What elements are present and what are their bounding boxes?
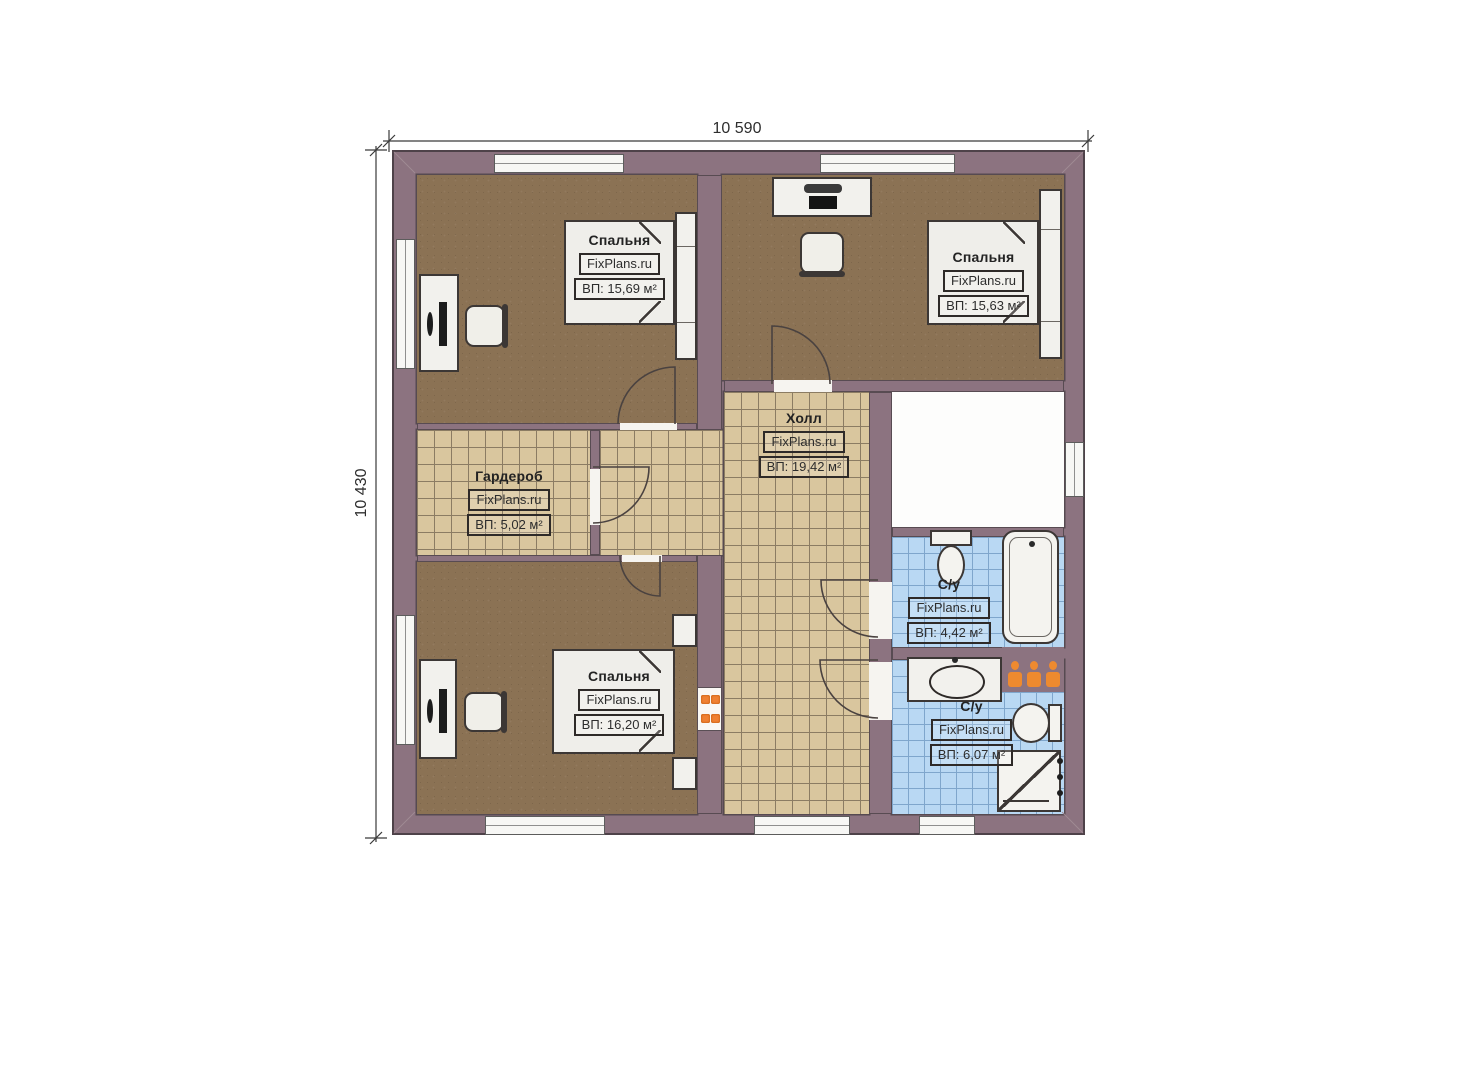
- window: [754, 816, 850, 835]
- room-label-wardrobe: Гардероб FixPlans.ru ВП: 5,02 м²: [444, 468, 574, 536]
- toilet-tank: [930, 530, 972, 546]
- dimension-width-label: 10 590: [637, 120, 837, 138]
- room-name: С/у: [938, 576, 960, 592]
- toilet-tank: [1048, 704, 1062, 742]
- door-opening: [590, 469, 600, 525]
- computer-icon: [439, 689, 447, 733]
- room-name: Спальня: [589, 232, 651, 248]
- printer-icon: [809, 196, 837, 209]
- room-label-bathroom-bottom: С/у FixPlans.ru ВП: 6,07 м²: [919, 698, 1024, 766]
- room-label-bedroom-bottom-left: Спальня FixPlans.ru ВП: 16,20 м²: [554, 668, 684, 736]
- printer-icon: [804, 184, 842, 193]
- radiator-knob: [1027, 672, 1041, 687]
- room-area: ВП: 15,69 м²: [574, 278, 665, 300]
- faucet: [1029, 541, 1035, 547]
- window: [919, 816, 975, 835]
- room-area: ВП: 4,42 м²: [907, 622, 990, 644]
- office-chair: [465, 305, 505, 347]
- office-desk: [419, 659, 457, 759]
- heater: [697, 687, 722, 731]
- chair-back: [501, 691, 507, 733]
- washbasin: [929, 665, 985, 699]
- faucet: [952, 657, 958, 663]
- room-area: ВП: 16,20 м²: [574, 714, 665, 736]
- corridor: [600, 430, 724, 555]
- window: [396, 239, 415, 369]
- shower-knob: [1057, 790, 1063, 796]
- watermark: FixPlans.ru: [763, 431, 844, 453]
- heater-dot: [701, 714, 710, 723]
- washbasin-counter: [907, 657, 1002, 702]
- window: [494, 154, 624, 173]
- divider: [1041, 229, 1060, 230]
- chair-back: [799, 271, 845, 277]
- window: [396, 615, 415, 745]
- door-opening: [869, 582, 892, 639]
- computer-icon: [439, 302, 447, 346]
- shower-base: [1003, 800, 1049, 802]
- door-opening: [774, 380, 832, 392]
- dimension-height-label: 10 430: [353, 443, 371, 543]
- office-chair: [464, 692, 504, 732]
- room-area: ВП: 5,02 м²: [467, 514, 550, 536]
- room-unlabeled: [892, 392, 1064, 527]
- shower-knob: [1057, 758, 1063, 764]
- divider: [677, 322, 695, 323]
- shower-knob: [1057, 774, 1063, 780]
- window: [820, 154, 955, 173]
- room-label-bedroom-top-left: Спальня FixPlans.ru ВП: 15,69 м²: [552, 232, 687, 300]
- office-desk: [419, 274, 459, 372]
- blanket-fold: [639, 301, 661, 323]
- room-name: Холл: [786, 410, 822, 426]
- room-area: ВП: 19,42 м²: [759, 456, 850, 478]
- watermark: FixPlans.ru: [931, 719, 1012, 741]
- window: [485, 816, 605, 835]
- heater-dot: [711, 714, 720, 723]
- watermark: FixPlans.ru: [943, 270, 1024, 292]
- interior-wall: [697, 555, 722, 814]
- chair-back: [502, 304, 508, 348]
- bathtub: [1002, 530, 1059, 644]
- window: [1065, 442, 1084, 497]
- radiator-knob: [1046, 672, 1060, 687]
- building-outline: Спальня FixPlans.ru ВП: 15,69 м² Спальня…: [392, 150, 1085, 835]
- room-label-bathroom-top: С/у FixPlans.ru ВП: 4,42 м²: [899, 576, 999, 644]
- interior-wall: [697, 175, 722, 430]
- office-desk: [772, 177, 872, 217]
- heater-dot: [711, 695, 720, 704]
- door-opening: [620, 423, 677, 430]
- towel-radiator: [1002, 647, 1064, 692]
- office-chair: [800, 232, 844, 274]
- room-area: ВП: 15,63 м²: [938, 295, 1029, 317]
- watermark: FixPlans.ru: [908, 597, 989, 619]
- computer-icon: [427, 312, 433, 336]
- room-label-bedroom-top-right: Спальня FixPlans.ru ВП: 15,63 м²: [916, 249, 1051, 317]
- divider: [1041, 321, 1060, 322]
- floor-plan-image: 10 590 10 430: [0, 0, 1473, 1080]
- room-name: С/у: [960, 698, 982, 714]
- room-label-hall: Холл FixPlans.ru ВП: 19,42 м²: [744, 410, 864, 478]
- room-name: Спальня: [588, 668, 650, 684]
- watermark: FixPlans.ru: [579, 253, 660, 275]
- nightstand: [672, 757, 697, 790]
- room-area: ВП: 6,07 м²: [930, 744, 1013, 766]
- watermark: FixPlans.ru: [468, 489, 549, 511]
- watermark: FixPlans.ru: [578, 689, 659, 711]
- nightstand: [672, 614, 697, 647]
- radiator-knob: [1008, 672, 1022, 687]
- heater-dot: [701, 695, 710, 704]
- blanket-fold: [1003, 222, 1025, 244]
- room-name: Гардероб: [475, 468, 543, 484]
- room-name: Спальня: [953, 249, 1015, 265]
- computer-icon: [427, 699, 433, 723]
- door-opening: [622, 555, 662, 562]
- door-opening: [869, 662, 892, 720]
- bathtub-inner: [1009, 537, 1052, 637]
